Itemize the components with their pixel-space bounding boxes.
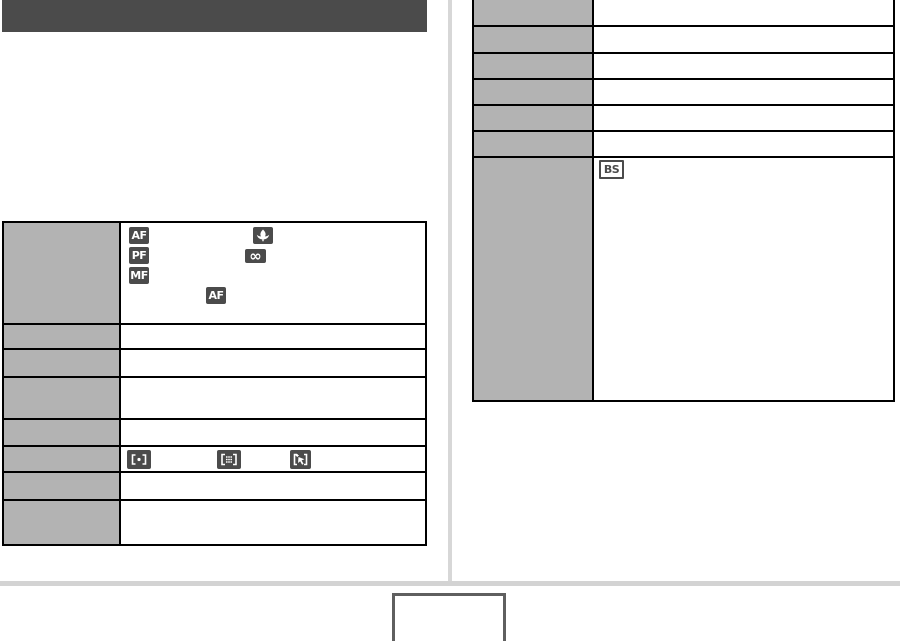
best-shot-cell: BS bbox=[594, 158, 893, 400]
autofocus-icon: AF bbox=[129, 227, 149, 244]
table-label-cell bbox=[4, 223, 119, 323]
table-content-cell bbox=[594, 132, 893, 156]
table-content-cell bbox=[594, 106, 893, 130]
table-label-cell bbox=[474, 27, 592, 52]
tracking-af-area-icon bbox=[290, 450, 311, 469]
table-label-cell bbox=[474, 54, 592, 78]
table-label-cell bbox=[474, 158, 592, 400]
table-label-cell bbox=[4, 447, 119, 471]
table-label-cell bbox=[474, 132, 592, 156]
infinity-focus-icon: ∞ bbox=[245, 249, 266, 263]
best-shot-icon: BS bbox=[599, 160, 624, 179]
table-label-cell bbox=[4, 473, 119, 499]
table-label-cell bbox=[474, 80, 592, 104]
spot-af-area-icon bbox=[127, 450, 151, 469]
table-content-cell bbox=[594, 54, 893, 78]
pan-focus-icon: PF bbox=[129, 247, 149, 264]
table-content-cell bbox=[121, 350, 425, 376]
af-area-options-cell bbox=[121, 447, 425, 471]
focus-options-cell: AF PF ∞ MF AF bbox=[121, 223, 425, 323]
macro-flower-icon bbox=[253, 227, 273, 244]
autofocus-icon: AF bbox=[206, 287, 226, 304]
footer-rule bbox=[0, 581, 900, 586]
table-content-cell bbox=[594, 80, 893, 104]
table-label-cell bbox=[474, 0, 592, 25]
table-content-cell bbox=[594, 0, 893, 25]
table-content-cell bbox=[121, 325, 425, 348]
manual-focus-icon: MF bbox=[129, 267, 149, 284]
page-number-box bbox=[392, 593, 506, 641]
table-content-cell bbox=[121, 501, 425, 544]
chapter-title-bar bbox=[2, 0, 427, 32]
table-content-cell bbox=[121, 378, 425, 418]
table-label-cell bbox=[4, 325, 119, 348]
table-label-cell bbox=[474, 106, 592, 130]
table-content-cell bbox=[121, 420, 425, 445]
table-label-cell bbox=[4, 350, 119, 376]
column-divider bbox=[448, 0, 452, 581]
multi-af-area-icon bbox=[217, 450, 241, 469]
table-label-cell bbox=[4, 420, 119, 445]
right-settings-table: BS bbox=[472, 0, 895, 402]
left-settings-table: AF PF ∞ MF AF bbox=[2, 221, 427, 546]
table-content-cell bbox=[121, 473, 425, 499]
table-label-cell bbox=[4, 501, 119, 544]
table-content-cell bbox=[594, 27, 893, 52]
table-label-cell bbox=[4, 378, 119, 418]
